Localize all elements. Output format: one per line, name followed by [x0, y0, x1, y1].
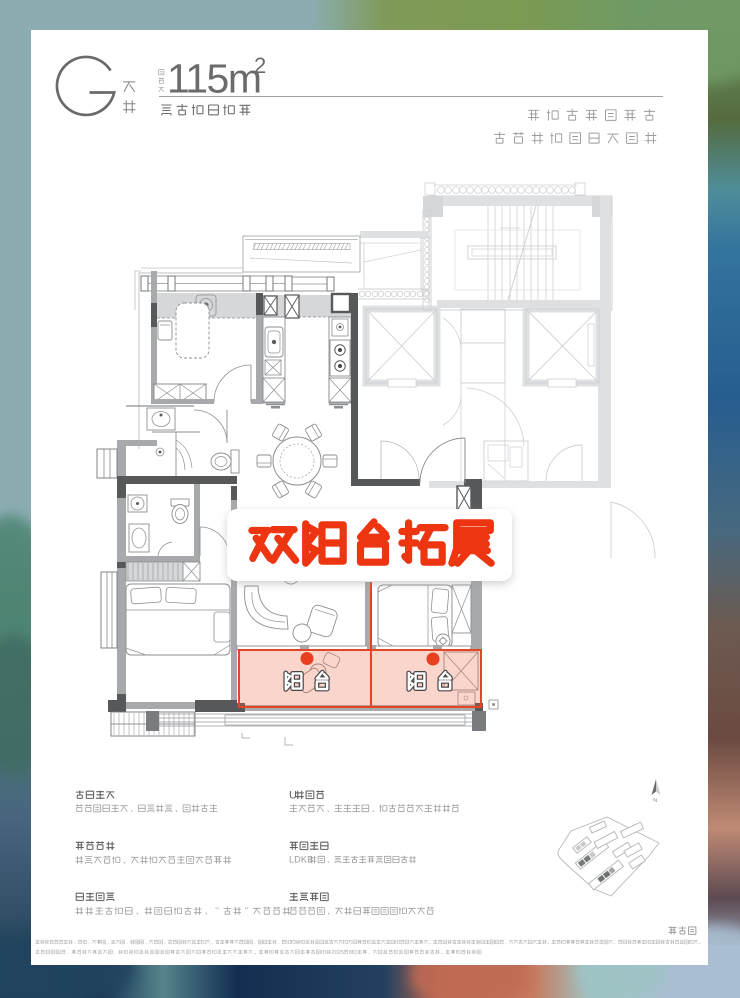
svg-text:N: N	[653, 798, 657, 804]
svg-text:2: 2	[254, 53, 266, 78]
svg-text:LDKB: LDKB	[289, 855, 313, 865]
svg-text:115m: 115m	[167, 56, 261, 102]
svg-text:8: 8	[349, 950, 352, 956]
svg-text:U: U	[289, 789, 297, 801]
svg-text:2025: 2025	[331, 950, 343, 956]
